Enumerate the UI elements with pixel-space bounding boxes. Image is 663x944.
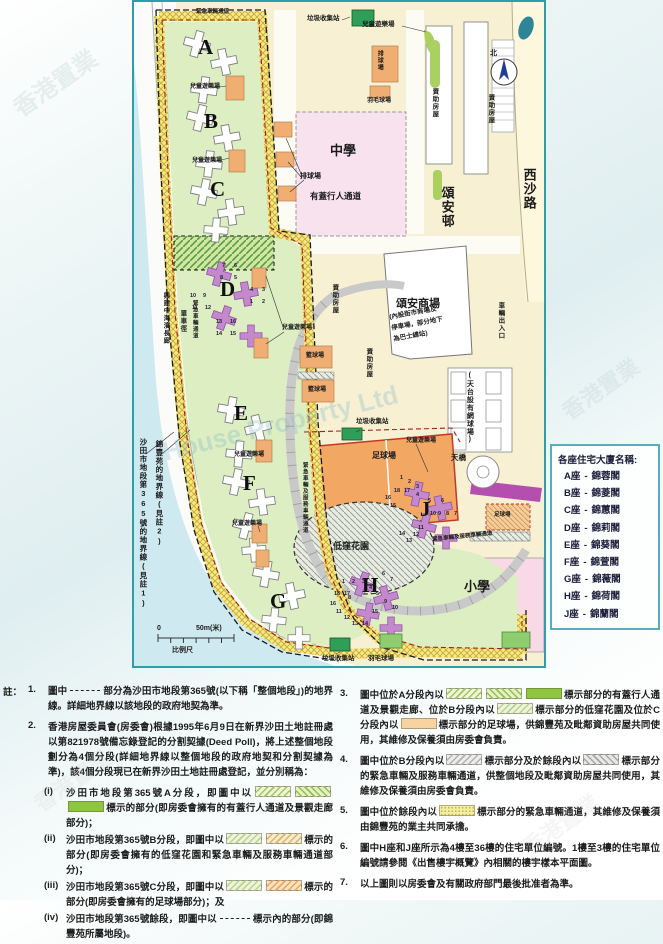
unit-number-d: 14 bbox=[216, 332, 222, 338]
cycle-track-label: 單車徑 bbox=[178, 310, 185, 333]
north-label: 北 bbox=[490, 50, 497, 57]
scale-zero: 0 bbox=[157, 625, 161, 632]
note-text: 沙田市地段第365號A分段，即圖中以 bbox=[66, 788, 253, 799]
notes-section: 註： 1.圖中部分為沙田市地段第365號(以下稱「整個地段」)的地界線。詳細地界… bbox=[0, 672, 663, 900]
unit-number-h: 2 bbox=[352, 580, 355, 586]
note-text: 標示的部分(即房委會擁有的有蓋行人通道及景觀走廊部分)； bbox=[66, 803, 333, 829]
unit-number-d: 4 bbox=[250, 288, 253, 294]
lot-365-boundary-label: 沙田市地段第365號的地界線(見註1) bbox=[139, 438, 147, 609]
note-item: 7.以上圖則以房委會及有關政府部門最後批准者為準。 bbox=[340, 877, 660, 892]
map-key-swatch-g3 bbox=[526, 688, 562, 699]
note-subnumber: (ii) bbox=[44, 833, 66, 878]
unit-number-h: 13 bbox=[352, 622, 358, 628]
unit-number-d: 11 bbox=[192, 306, 198, 312]
note-subnumber: (i) bbox=[44, 786, 66, 831]
vehicle-entrance-label: 車輛出入口 bbox=[496, 302, 503, 340]
map-key-swatch-gl bbox=[497, 703, 533, 714]
kam-fung-court-boundary-label: 錦豐苑的地界線(見註2) bbox=[155, 440, 163, 547]
unit-number-h: 15 bbox=[372, 610, 378, 616]
note-subitem: (iv)沙田市地段第365號餘段，即圖中以標示內的部分(即錦豐苑所屬地段)。 bbox=[44, 912, 333, 942]
unit-number-j: 17 bbox=[404, 489, 410, 495]
block-letter-c: C bbox=[210, 178, 225, 200]
shopping-centre-note-line3: 為巴士總站) bbox=[393, 331, 428, 344]
watermark: 香港置業 bbox=[555, 350, 645, 427]
dashed-boundary-symbol bbox=[220, 918, 250, 919]
sunken-garden-label: 低窪花園 bbox=[333, 542, 369, 551]
scale-max: 50m(米) bbox=[196, 625, 222, 632]
footbridge-label: 天橋 bbox=[451, 454, 466, 462]
unit-number-d: 12 bbox=[205, 306, 211, 312]
note-item: 6.圖中H座和J座所示為4樓至36樓的住宅單位編號。1樓至3樓的住宅單位編號請參… bbox=[340, 841, 660, 871]
unit-number-d: 13 bbox=[216, 320, 222, 326]
unit-number-d: 8 bbox=[220, 276, 223, 282]
playground-label: 兒童遊樂場 bbox=[234, 452, 264, 458]
emergency-vehicle-access-label: 緊急車輛通道 bbox=[196, 10, 229, 16]
note-subitem: (ii)沙田市地段第365號B分段，即圖中以標示的部分(即房委會擁有的低窪花園和… bbox=[44, 833, 333, 878]
unit-number-j: 12 bbox=[413, 533, 419, 539]
unit-number-j: 16 bbox=[385, 496, 391, 502]
unit-number-h: 14 bbox=[362, 622, 368, 628]
refuse-collection-point-label: 垃圾收集站 bbox=[307, 16, 340, 23]
unit-number-j: 18 bbox=[394, 489, 400, 495]
legend-title: 各座住宅大廈名稱: bbox=[558, 452, 654, 466]
refuse-collection-point-label: 垃圾收集站 bbox=[356, 419, 389, 426]
sai-sha-road-label: 西沙路 bbox=[522, 168, 536, 210]
map-key-swatch-o1 bbox=[266, 833, 302, 844]
scale-bar-label: 比例尺 bbox=[172, 647, 193, 654]
note-item: 3.圖中位於A分段內以標示部分的有蓋行人通道及景觀走廊、位於B分段內以標示部分的… bbox=[340, 688, 660, 748]
unit-number-j: 8 bbox=[446, 512, 449, 518]
primary-school-label: 小學 bbox=[464, 580, 490, 594]
unit-number-h: 6 bbox=[382, 572, 385, 578]
notes-heading: 註： bbox=[3, 684, 22, 698]
unit-number-d: 16 bbox=[230, 320, 236, 326]
unit-number-h: 12 bbox=[344, 616, 350, 622]
block-name-legend: 各座住宅大廈名稱: A座-錦蓉閣B座-錦菱閣C座-錦蕙閣D座-錦莉閣E座-錦葵閣… bbox=[550, 444, 660, 630]
note-number: 5. bbox=[340, 805, 360, 835]
unit-number-h: 9 bbox=[384, 600, 387, 606]
note-text: 以上圖則以房委會及有關政府部門最後批准者為準。 bbox=[360, 879, 579, 890]
unit-number-j: 2 bbox=[408, 480, 411, 486]
unit-number-j: 10 bbox=[430, 512, 436, 518]
map-key-swatch-o2 bbox=[266, 880, 302, 891]
playground-label: 兒童遊樂場 bbox=[282, 325, 312, 331]
playground-label: 兒童遊樂場 bbox=[362, 22, 395, 29]
note-number: 3. bbox=[340, 688, 360, 748]
map-key-swatch-gy2 bbox=[583, 754, 619, 765]
subsidised-housing-label: 資助房屋 bbox=[364, 348, 371, 378]
map-key-swatch-g1 bbox=[446, 688, 482, 699]
note-text: 圖中位於A分段內以 bbox=[360, 690, 444, 701]
block-letter-g: G bbox=[270, 590, 286, 612]
playground-label: 兒童遊樂場 bbox=[406, 438, 436, 444]
playground-label: 兒童遊樂場 bbox=[192, 158, 222, 164]
unit-number-h: 4 bbox=[369, 586, 372, 592]
unit-number-j: 14 bbox=[399, 532, 405, 538]
site-plan-map: ABCDEFGHJ中學小學頌安邨西沙路頌安商場(內設街市商場及停車場，部分地下為… bbox=[132, 0, 546, 668]
legend-item: F座-錦萱閣 bbox=[558, 554, 654, 571]
notes-column-right: 3.圖中位於A分段內以標示部分的有蓋行人通道及景觀走廊、位於B分段內以標示部分的… bbox=[340, 688, 660, 898]
unit-number-d: 3 bbox=[262, 288, 265, 294]
block-letter-a: A bbox=[198, 36, 213, 58]
map-key-swatch-g2 bbox=[295, 786, 331, 797]
unit-number-h: 17 bbox=[344, 592, 350, 598]
note-number: 7. bbox=[340, 877, 360, 892]
note-number: 6. bbox=[340, 841, 360, 871]
rooftop-tennis-court-label: (天台設有網球場) bbox=[466, 372, 473, 444]
unit-number-j: 7 bbox=[454, 512, 457, 518]
unit-number-d: 2 bbox=[262, 300, 265, 306]
playground-label: 兒童遊樂場 bbox=[232, 521, 262, 527]
note-text: 香港房屋委員會(房委會)根據1995年6月9日在新界沙田土地註冊處以第82197… bbox=[48, 722, 333, 778]
subsidised-housing-label: 資助房屋 bbox=[430, 88, 437, 118]
legend-item: D座-錦莉閣 bbox=[558, 520, 654, 537]
note-item: 1.圖中部分為沙田市地段第365號(以下稱「整個地段」)的地界線。詳細地界線以該… bbox=[28, 684, 333, 714]
note-text: 圖中位於B分段內以 bbox=[360, 756, 444, 767]
note-item: 2.香港房屋委員會(房委會)根據1995年6月9日在新界沙田土地註冊處以第821… bbox=[28, 720, 333, 780]
map-key-swatch-gl bbox=[226, 880, 262, 891]
badminton-court-label: 羽毛球場 bbox=[367, 98, 391, 104]
playground-label: 兒童遊樂場 bbox=[190, 84, 220, 90]
unit-number-h: 1 bbox=[342, 580, 345, 586]
note-item: 5.圖中位於餘段內以標示部分的緊急車輛通道，其維修及保養須由錦豐苑的業主共同承擔… bbox=[340, 805, 660, 835]
emergency-service-vehicle-access-label: 緊急車輛及服務車輛通道 bbox=[301, 462, 307, 534]
note-text: 沙田市地段第365號餘段，即圖中以 bbox=[66, 914, 217, 925]
emergency-service-vehicle-access-label: 緊急車輛及服務車輛通道 bbox=[432, 532, 493, 544]
unit-number-h: 18 bbox=[334, 592, 340, 598]
block-letter-b: B bbox=[204, 110, 218, 132]
map-label-layer: ABCDEFGHJ中學小學頌安邨西沙路頌安商場(內設街市商場及停車場，部分地下為… bbox=[134, 2, 544, 666]
note-subnumber: (iv) bbox=[44, 912, 66, 942]
chung-on-estate-label: 頌安邨 bbox=[440, 186, 454, 228]
unit-number-j: 15 bbox=[390, 504, 396, 510]
covered-walkway-label: 有蓋行人通道 bbox=[310, 192, 361, 201]
map-key-swatch-o3 bbox=[401, 718, 437, 729]
subsidised-housing-label: 資助房屋 bbox=[330, 284, 337, 314]
legend-item: C座-錦蕙閣 bbox=[558, 502, 654, 519]
map-key-swatch-gy1 bbox=[446, 754, 482, 765]
unit-number-d: 15 bbox=[230, 332, 236, 338]
note-text: 圖中位於餘段內以 bbox=[360, 807, 437, 818]
block-letter-e: E bbox=[234, 402, 248, 424]
note-number: 4. bbox=[340, 754, 360, 799]
basketball-court-label: 籃球場 bbox=[308, 387, 326, 393]
secondary-school-label: 中學 bbox=[330, 144, 356, 158]
subsidised-housing-label: 資助房屋 bbox=[486, 94, 493, 124]
unit-number-j: 1 bbox=[400, 476, 403, 482]
unit-number-h: 16 bbox=[330, 602, 336, 608]
unit-number-d: 5 bbox=[234, 276, 237, 282]
legend-item: B座-錦菱閣 bbox=[558, 485, 654, 502]
unit-number-h: 3 bbox=[362, 580, 365, 586]
unit-number-j: 5 bbox=[428, 499, 431, 505]
unit-number-h: 7 bbox=[390, 578, 393, 584]
unit-number-j: 9 bbox=[438, 512, 441, 518]
legend-item: G座-錦薇閣 bbox=[558, 571, 654, 588]
football-pitch-label: 足球場 bbox=[494, 513, 511, 519]
unit-number-d: 9 bbox=[203, 294, 206, 300]
notes-column-left: 1.圖中部分為沙田市地段第365號(以下稱「整個地段」)的地界線。詳細地界線以該… bbox=[28, 684, 333, 944]
map-key-swatch-g3 bbox=[68, 801, 104, 812]
dashed-boundary-symbol bbox=[70, 690, 100, 691]
map-key-swatch-g2 bbox=[486, 688, 522, 699]
map-key-swatch-gl bbox=[226, 833, 262, 844]
legend-item: A座-錦蓉閣 bbox=[558, 468, 654, 485]
note-number: 2. bbox=[28, 720, 48, 780]
unit-number-d: 10 bbox=[190, 294, 196, 300]
badminton-court-label: 羽毛球場 bbox=[368, 656, 394, 663]
unit-number-h: 11 bbox=[336, 610, 342, 616]
note-text: 圖中H座和J座所示為4樓至36樓的住宅單位編號。1樓至3樓的住宅單位編號請參閱《… bbox=[360, 843, 660, 869]
map-key-swatch-g1 bbox=[255, 786, 291, 797]
unit-number-j: 11 bbox=[418, 526, 424, 532]
refuse-collection-point-label: 垃圾收集站 bbox=[322, 656, 355, 663]
legend-item: J座-錦蘭閣 bbox=[558, 606, 654, 623]
map-key-swatch-yd bbox=[439, 805, 475, 816]
note-subitem: (iii)沙田市地段第365號C分段，即圖中以標示的部分(即房委會擁有的足球場部… bbox=[44, 880, 333, 910]
unit-number-d: 7 bbox=[222, 264, 225, 270]
unit-number-j: 13 bbox=[406, 539, 412, 545]
note-subitem: (i)沙田市地段第365號A分段，即圖中以標示的部分(即房委會擁有的有蓋行人通道… bbox=[44, 786, 333, 831]
legend-item: E座-錦葵閣 bbox=[558, 537, 654, 554]
note-text: 圖中 bbox=[48, 686, 67, 697]
football-pitch-label: 足球場 bbox=[372, 452, 396, 460]
watermark: 香港置業 bbox=[5, 40, 104, 124]
volleyball-court-label: 排球場 bbox=[300, 173, 321, 180]
note-text: 沙田市地段第365號C分段，即圖中以 bbox=[66, 882, 224, 893]
basketball-court-label: 籃球場 bbox=[306, 353, 324, 359]
note-text: 標示部分及於餘段內以 bbox=[484, 756, 581, 767]
unit-number-j: 4 bbox=[416, 493, 419, 499]
note-number: 1. bbox=[28, 684, 48, 714]
note-text: 沙田市地段第365號B分段，即圖中以 bbox=[66, 835, 224, 846]
unit-number-d: 1 bbox=[250, 300, 253, 306]
page: ABCDEFGHJ中學小學頌安邨西沙路頌安商場(內設街市商場及停車場，部分地下為… bbox=[0, 0, 663, 900]
note-subnumber: (iii) bbox=[44, 880, 66, 910]
unit-number-j: 6 bbox=[441, 499, 444, 505]
legend-rows: A座-錦蓉閣B座-錦菱閣C座-錦蕙閣D座-錦莉閣E座-錦葵閣F座-錦萱閣G座-錦… bbox=[558, 468, 654, 623]
legend-item: H座-錦荷閣 bbox=[558, 588, 654, 605]
unit-number-j: 3 bbox=[416, 485, 419, 491]
promenade-under-construction-label: 興建中海濱長廊 bbox=[161, 292, 168, 345]
volleyball-court-label: 排球場 bbox=[376, 50, 382, 71]
unit-number-h: 10 bbox=[392, 606, 398, 612]
unit-number-d: 6 bbox=[234, 264, 237, 270]
block-letter-f: F bbox=[243, 472, 256, 494]
note-item: 4.圖中位於B分段內以標示部分及於餘段內以標示部分的緊急車輛及服務車輛通道，供整… bbox=[340, 754, 660, 799]
unit-number-h: 5 bbox=[376, 592, 379, 598]
